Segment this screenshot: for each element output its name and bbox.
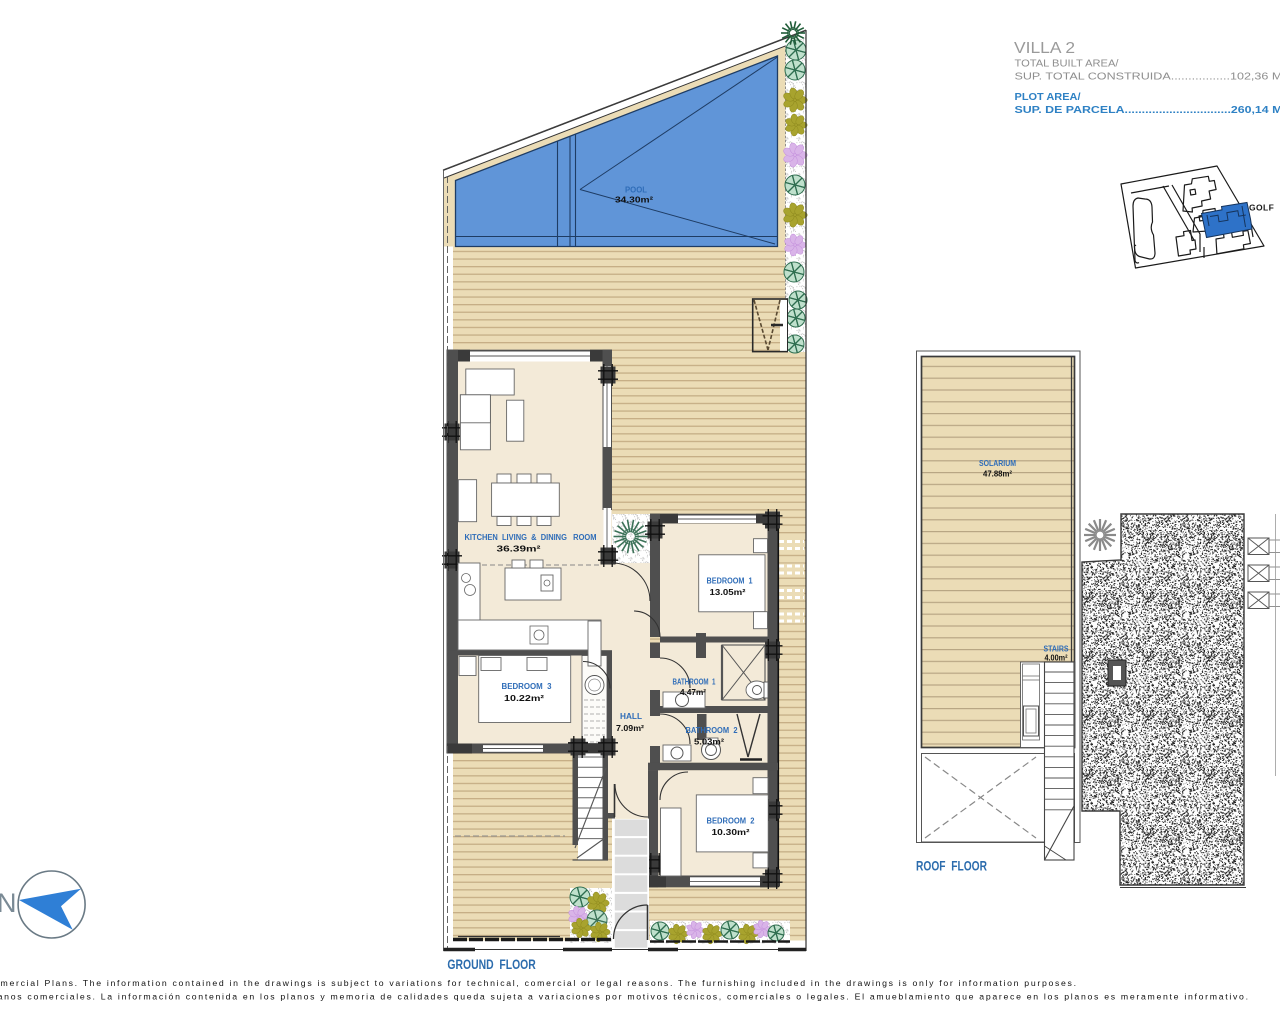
svg-text:7.09m²: 7.09m²	[616, 723, 644, 733]
svg-text:36.39m²: 36.39m²	[497, 544, 541, 554]
svg-text:SOLARIUM: SOLARIUM	[979, 459, 1016, 468]
svg-text:omercial Plans. The informatio: omercial Plans. The information containe…	[0, 978, 1076, 988]
svg-text:GROUND FLOOR: GROUND FLOOR	[447, 957, 535, 972]
svg-text:SUP. DE PARCELA...............: SUP. DE PARCELA.........................…	[1015, 105, 1280, 116]
svg-text:10.22m²: 10.22m²	[504, 693, 544, 703]
svg-text:HALL: HALL	[620, 711, 642, 721]
svg-text:34.30m²: 34.30m²	[615, 195, 653, 205]
svg-text:TOTAL BUILT AREA/: TOTAL BUILT AREA/	[1015, 59, 1119, 70]
svg-text:13.05m²: 13.05m²	[710, 587, 746, 597]
svg-text:VILLA 2: VILLA 2	[1014, 40, 1075, 57]
svg-text:BEDROOM 2: BEDROOM 2	[707, 816, 755, 826]
svg-text:SUP. TOTAL CONSTRUIDA.........: SUP. TOTAL CONSTRUIDA.................10…	[1015, 72, 1280, 83]
svg-text:ROOF FLOOR: ROOF FLOOR	[916, 859, 987, 874]
svg-text:BATHROOM 2: BATHROOM 2	[686, 725, 738, 735]
svg-text:PLOT AREA/: PLOT AREA/	[1015, 92, 1081, 103]
svg-text:BEDROOM 1: BEDROOM 1	[707, 576, 753, 586]
svg-text:BATHROOM 1: BATHROOM 1	[673, 678, 716, 687]
svg-text:lanos comerciales. La informac: lanos comerciales. La información conten…	[0, 992, 1248, 1002]
svg-text:47.88m²: 47.88m²	[983, 470, 1012, 479]
svg-text:KITCHEN LIVING & DINING R: KITCHEN LIVING & DINING ROOM	[465, 532, 597, 542]
svg-text:10.30m²: 10.30m²	[712, 827, 750, 837]
svg-text:5.03m²: 5.03m²	[694, 737, 724, 747]
svg-text:POOL: POOL	[625, 185, 647, 195]
svg-text:4.00m²: 4.00m²	[1045, 654, 1068, 663]
svg-text:STAIRS: STAIRS	[1044, 645, 1069, 654]
svg-text:4.47m²: 4.47m²	[680, 688, 706, 697]
svg-text:N: N	[0, 888, 17, 918]
svg-text:GOLF: GOLF	[1249, 203, 1274, 213]
svg-text:BEDROOM 3: BEDROOM 3	[502, 681, 552, 691]
